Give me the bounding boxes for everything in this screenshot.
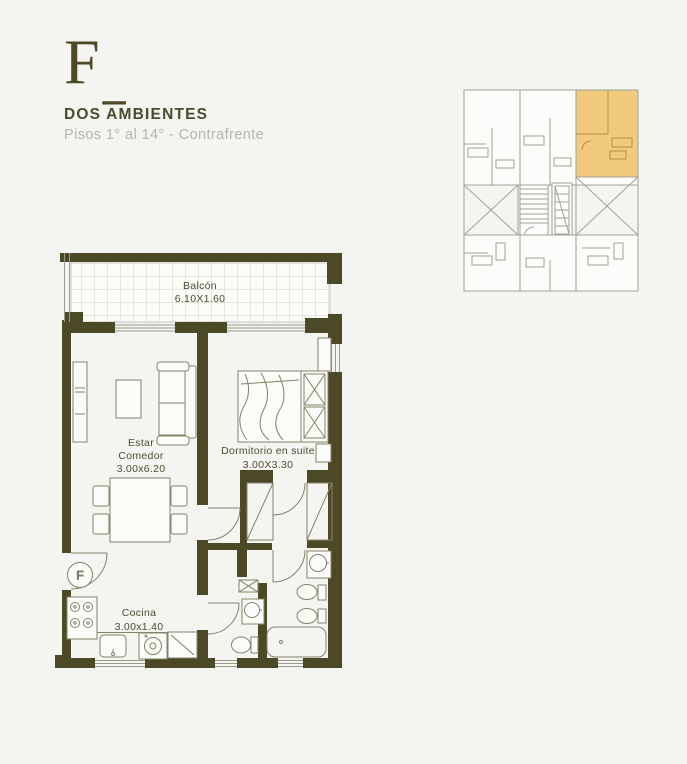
keyplan: [462, 88, 640, 293]
unit-floorplan: Balcón 6.10X1.60: [55, 250, 350, 675]
unit-letter-row: F _: [64, 18, 264, 92]
living-dims: 3.00x6.20: [117, 463, 166, 475]
entrance-label: F: [76, 569, 83, 583]
closets: [247, 483, 332, 540]
bathroom-fixtures: [267, 551, 331, 657]
unit-letter-underscore: _: [103, 74, 126, 92]
balcony-label: Balcón: [183, 280, 217, 292]
bedroom-label: Dormitorio en suite: [221, 445, 315, 457]
keyplan-stairs: [520, 185, 548, 237]
living-label-2: Comedor: [118, 450, 163, 462]
balcony: Balcón 6.10X1.60: [71, 262, 330, 322]
header: F _ DOS AMBIENTES Pisos 1° al 14° - Cont…: [64, 18, 264, 143]
page-subtitle: Pisos 1° al 14° - Contrafrente: [64, 127, 264, 143]
keyplan-bottom-band: [464, 235, 638, 291]
balcony-dims: 6.10X1.60: [175, 293, 226, 305]
bedroom-dims: 3.00X3.30: [243, 459, 294, 471]
keyplan-elevator: [552, 183, 572, 237]
floorplan-page: F _ DOS AMBIENTES Pisos 1° al 14° - Cont…: [0, 0, 687, 764]
kitchen-dims: 3.00x1.40: [115, 621, 164, 633]
entrance-marker: F: [68, 563, 93, 588]
living-label-1: Estar: [128, 437, 154, 449]
unit-letter: F: [64, 33, 100, 92]
kitchen-label: Cocina: [122, 607, 156, 619]
bedroom-furniture: [238, 338, 331, 462]
page-title: DOS AMBIENTES: [64, 106, 264, 124]
